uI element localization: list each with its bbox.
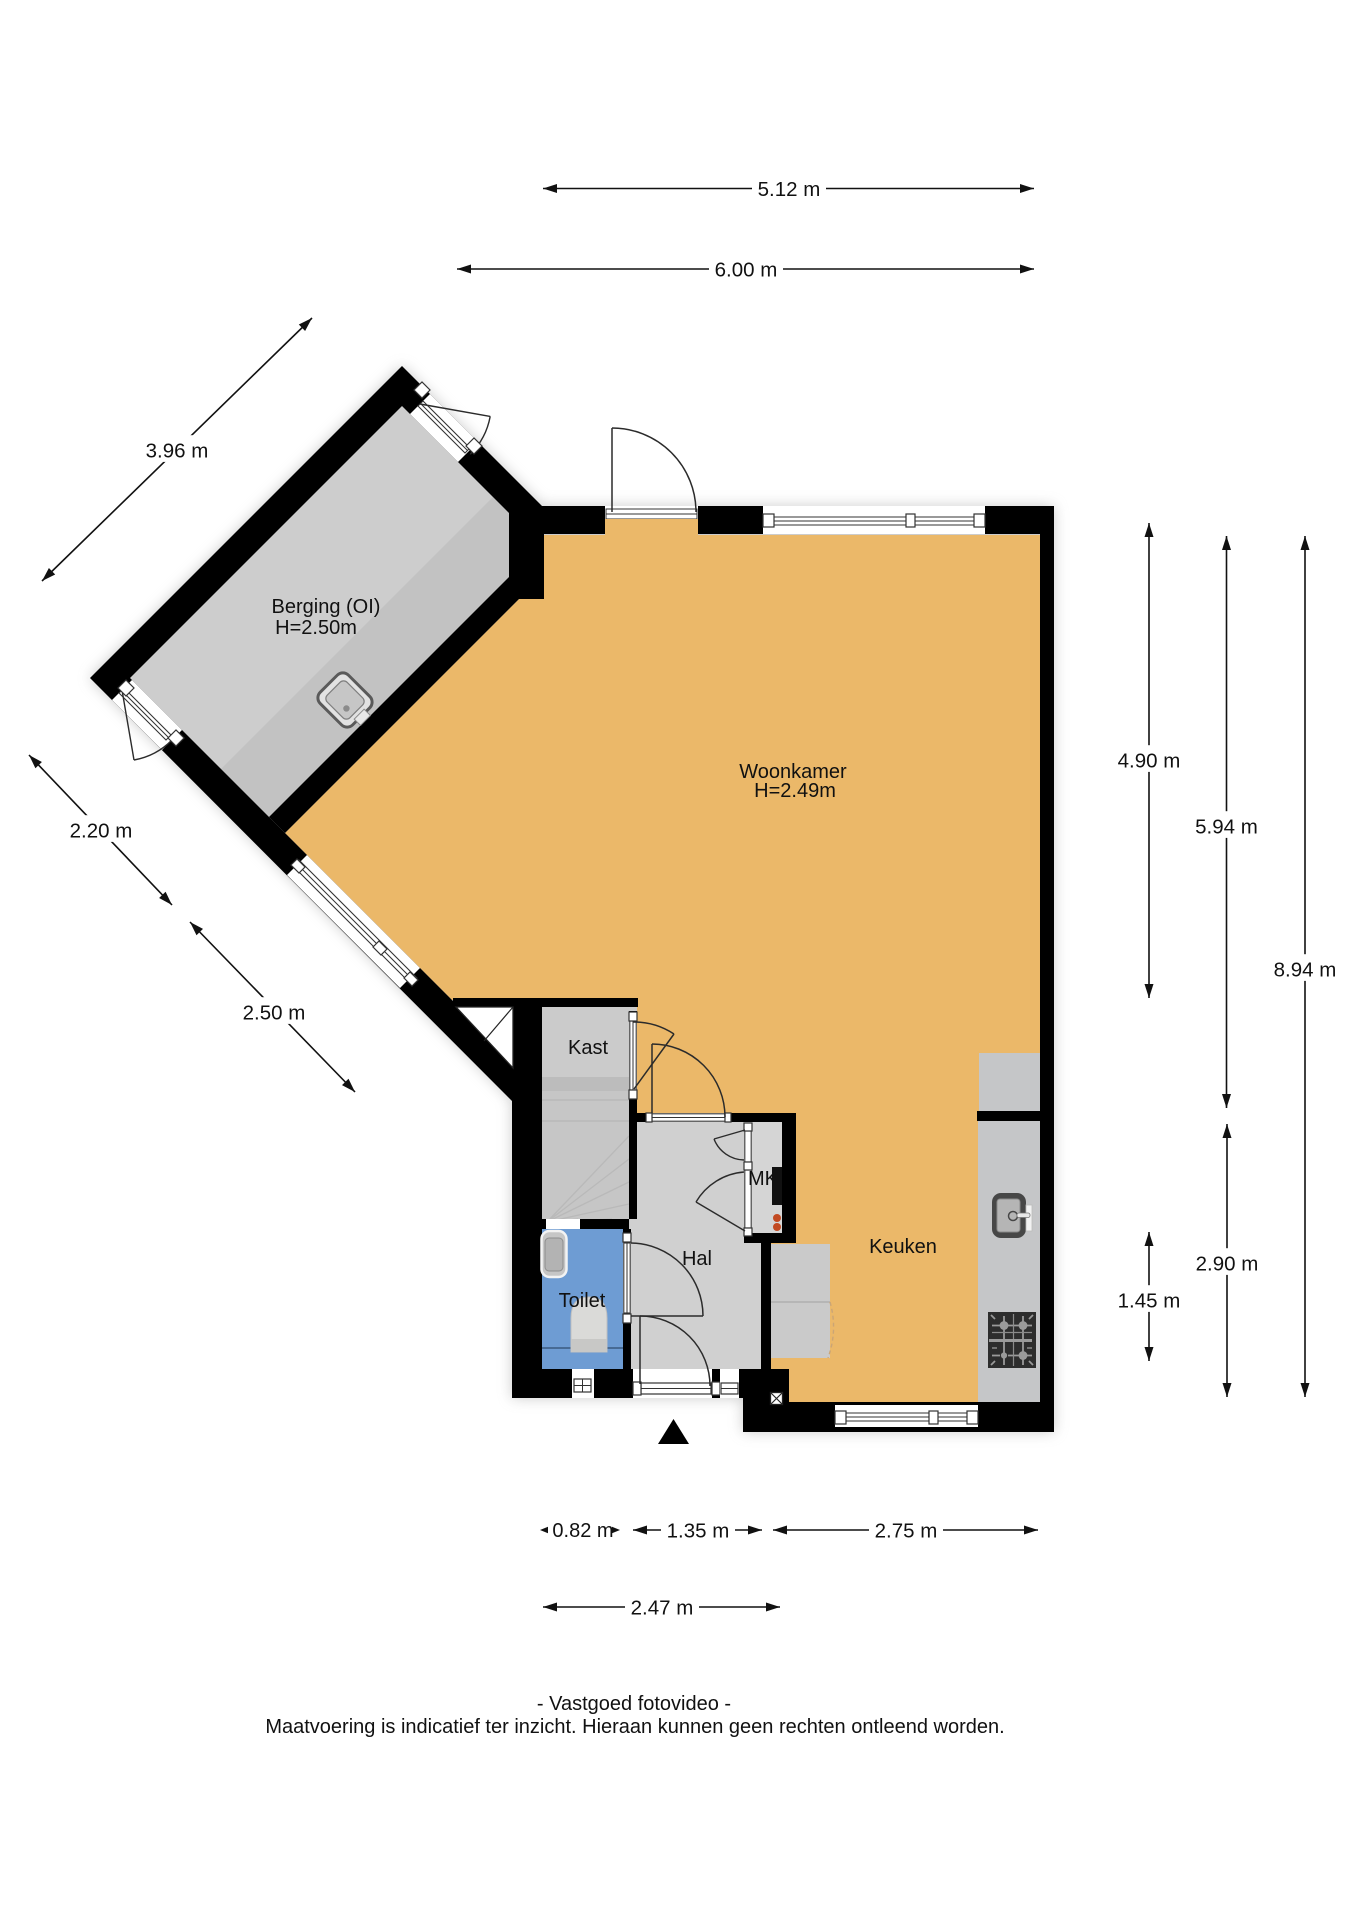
svg-text:4.90 m: 4.90 m (1118, 749, 1181, 772)
svg-text:1.35 m: 1.35 m (667, 1519, 730, 1542)
svg-text:Berging (OI): Berging (OI) (272, 596, 381, 618)
svg-text:Hal: Hal (682, 1248, 712, 1270)
svg-text:2.75 m: 2.75 m (875, 1519, 938, 1542)
svg-text:1.45 m: 1.45 m (1118, 1289, 1181, 1312)
svg-text:5.94 m: 5.94 m (1195, 815, 1258, 838)
svg-text:H=2.50m: H=2.50m (275, 617, 357, 639)
svg-text:8.94 m: 8.94 m (1274, 958, 1337, 981)
svg-text:2.90 m: 2.90 m (1196, 1252, 1259, 1275)
svg-text:2.20 m: 2.20 m (70, 819, 133, 842)
svg-text:Maatvoering is indicatief ter: Maatvoering is indicatief ter inzicht. H… (265, 1716, 1004, 1738)
svg-text:Kast: Kast (568, 1037, 608, 1059)
svg-text:- Vastgoed fotovideo -: - Vastgoed fotovideo - (537, 1693, 731, 1715)
svg-text:3.96 m: 3.96 m (146, 439, 209, 462)
svg-text:Keuken: Keuken (869, 1236, 937, 1258)
svg-text:0.82 m: 0.82 m (552, 1520, 613, 1542)
svg-text:5.12 m: 5.12 m (758, 178, 821, 201)
svg-text:2.50 m: 2.50 m (243, 1001, 306, 1024)
svg-text:2.47 m: 2.47 m (631, 1596, 694, 1619)
svg-text:H=2.49m: H=2.49m (754, 780, 836, 802)
svg-text:Toilet: Toilet (559, 1290, 606, 1312)
svg-text:6.00 m: 6.00 m (715, 258, 778, 281)
